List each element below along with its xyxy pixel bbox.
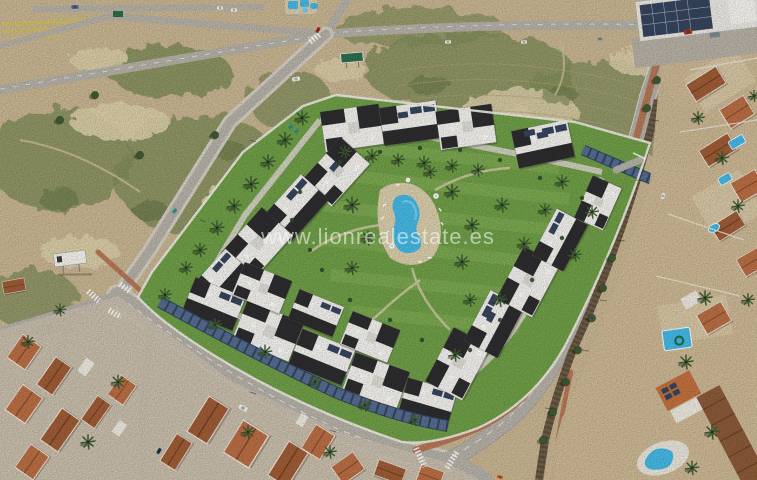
aerial-photo: www.lionrealestate.es (0, 0, 757, 480)
photo-grain (0, 0, 757, 480)
aerial-scene (0, 0, 757, 480)
